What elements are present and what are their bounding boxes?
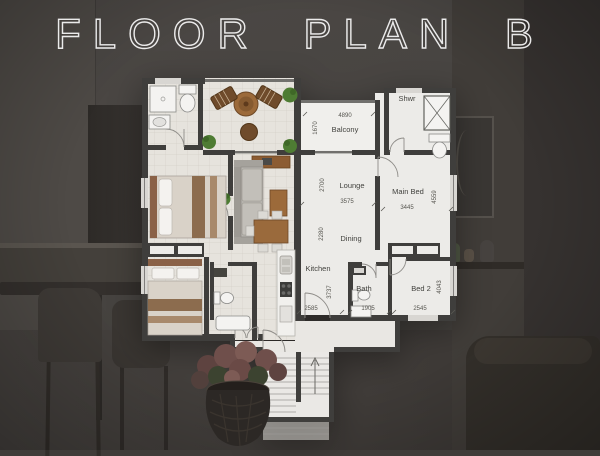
dim-balcony-width: 4890 [338, 113, 352, 119]
dim-kitchen-depth: 3737 [327, 285, 333, 299]
dim-kitchen-width: 2585 [304, 306, 318, 312]
dim-balcony-depth: 1670 [313, 121, 319, 135]
page-title: FLOOR PLAN B [0, 10, 600, 58]
foreground-plant [188, 338, 292, 450]
label-bed2: Bed 2 [411, 284, 431, 293]
label-bath: Bath [356, 284, 371, 293]
dim-lounge-depth: 2700 [320, 178, 326, 192]
plant-pot [206, 381, 270, 446]
label-lounge: Lounge [339, 181, 364, 190]
dim-bed2-depth: 4043 [437, 280, 443, 294]
dim-dining-depth: 2280 [319, 227, 325, 241]
dim-main-bed-width: 3445 [400, 205, 414, 211]
label-dining: Dining [340, 234, 361, 243]
dim-bed2-width: 2545 [413, 306, 427, 312]
dim-main-bed-depth: 4559 [432, 190, 438, 204]
floor-plan-drawing: 4890 1670 Balcony Lounge 3575 2700 Main … [0, 0, 600, 450]
dim-bath-width: 1905 [361, 306, 375, 312]
label-shower: Shwr [398, 94, 416, 103]
label-kitchen: Kitchen [305, 264, 330, 273]
dim-lounge-width: 3575 [340, 199, 354, 205]
label-main-bed: Main Bed [392, 187, 424, 196]
label-balcony: Balcony [332, 125, 359, 134]
